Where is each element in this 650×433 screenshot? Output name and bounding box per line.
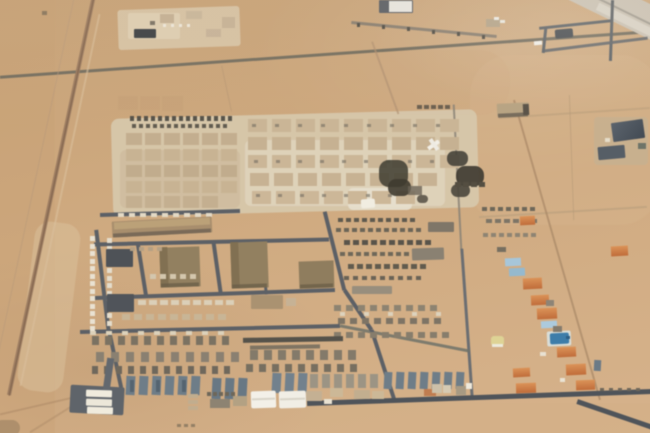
yard-structure [210,399,230,408]
tent-block-row [164,181,180,193]
vehicle-row [153,124,157,128]
dark-speckle-row [424,105,429,109]
tent-speckle-row [254,160,258,163]
equipment-row [392,228,397,232]
equipment-row [402,264,408,269]
storage-shed [428,222,454,232]
equipment-row [368,228,373,232]
equipment-row [400,228,405,232]
yard-row [171,352,179,362]
roadside-dots [609,388,613,391]
tent-block-row [164,165,180,177]
tent-block-row [164,133,180,145]
yard-row [246,364,253,372]
yard-row [116,366,122,374]
trailer-row [129,213,135,217]
yard-row [140,366,146,374]
tent-block-row [126,181,142,193]
trailer-column [90,319,95,324]
tent-block-row [145,149,161,161]
vehicle-row [200,116,204,121]
hangar-south-shadow [161,282,199,287]
tent-block-row [126,149,142,161]
tent-speckle-row [298,124,302,127]
cabin-row [204,300,212,305]
orange-roof-building [513,368,530,378]
trailer-row [162,213,168,217]
laydown-row [382,305,389,311]
yard-row [209,336,216,345]
cabin-row [170,274,176,279]
yard-row [183,336,190,345]
base-street [212,242,223,295]
container-accent-dark [130,380,134,392]
white-bits-row [412,312,417,316]
yard-row [337,364,344,372]
vehicle-row [216,124,220,128]
tent-speckle-row [321,124,325,127]
tent-speckle-row [436,124,440,127]
tent-block-row [418,173,437,186]
vehicle-row [165,116,169,121]
equipment-row [360,228,365,232]
trailer-column [90,251,95,256]
tent-block-row [145,196,161,208]
tent-block-row [126,133,142,145]
tent-block-row [202,149,218,161]
revetment-posts [457,32,460,36]
vehicle-row [223,124,227,128]
equipment-row [380,252,385,256]
vehicle-row [146,124,150,128]
cabin-row [170,314,178,320]
laydown-row [442,332,449,338]
white-bits-row [106,331,112,335]
strip-item-row [513,219,519,223]
cabin-row [226,300,234,305]
orange-roof-building [576,380,595,391]
tent-block-row [183,149,199,161]
equipment-row [384,264,390,269]
equipment-row [354,218,359,222]
yard-row [128,366,134,374]
mixed-storage-row [358,374,366,388]
equipment-row [380,240,386,245]
tent-speckle-row [298,160,302,163]
compound-structure [222,17,235,28]
bottom-speck [184,424,188,427]
vehicle-row [193,116,197,121]
cabin-row [134,314,142,320]
tent-speckle-row [390,124,394,127]
equipment-row [362,276,367,280]
trailer-column [90,296,95,301]
laydown-row [382,332,389,338]
yard-dots [219,392,223,396]
revetment-posts [382,25,385,29]
trailer-row [140,213,146,217]
feature-layer [0,0,650,433]
vehicle-row [195,124,199,128]
orange-roof-building [611,246,629,257]
storage-shed [352,286,392,294]
base-street [80,324,340,334]
desert-track [221,65,232,111]
roadside-building [456,386,466,395]
yard-row [348,350,356,360]
white-bits-row [202,331,208,335]
white-bits-row [138,331,144,335]
trailer-column [90,289,95,294]
equipment-row [340,252,345,256]
strip-item [553,326,562,332]
white-building [86,390,112,397]
laydown-row [394,332,401,338]
container-row-blue [165,376,175,395]
roadside-dots [600,388,604,391]
container-row-blue [420,372,429,389]
strip-item-row [486,219,492,223]
mixed-storage-row [334,374,342,388]
tent-block-row [164,149,180,161]
tent-block-row [272,155,291,168]
yard-row [350,364,357,372]
equipment-row [336,228,341,232]
laydown-row [422,318,429,324]
equipment-row [352,228,357,232]
equipment-row [376,228,381,232]
cabin-row [215,300,223,305]
equipment-cluster [471,182,477,187]
asphalt-pad-arm [103,358,114,391]
yard-row [157,336,164,345]
equipment-row [407,240,413,245]
yard-row [334,350,342,360]
tent-block-row [250,173,269,186]
white-vehicle [494,17,499,20]
trailer-row [151,213,157,217]
equipment-row [416,240,422,245]
white-building [86,399,112,406]
laydown-row [398,318,405,324]
roadside-building [432,384,442,393]
yard-dots [213,392,217,396]
cabin-row [182,300,190,305]
equipment-cluster [455,182,461,187]
equipment-row [394,218,399,222]
tent-speckle-row [344,194,348,197]
trailer-column [90,266,95,271]
corner-smudge [0,420,20,433]
tent-speckle-row [413,124,417,127]
equipment-row [393,264,399,269]
white-container-row [187,24,190,27]
dark-slate-building [597,145,625,160]
mixed-storage-row [346,374,354,388]
tent-block-row [344,137,363,150]
white-bits-row [154,331,160,335]
equipment-row [416,276,421,280]
vehicle-row [130,116,134,121]
trailer-column [107,268,112,273]
yard-structure-row [188,406,198,410]
vehicle-row [151,116,155,121]
white-container-row [171,24,174,27]
warehouse-white-roof [389,1,412,12]
cabin-row [149,300,157,305]
laydown-row [350,318,357,324]
tent-block-row [202,165,218,177]
equipment-row [362,218,367,222]
vehicle-row [148,247,153,251]
equipment-row [366,264,372,269]
vehicle-row [160,124,164,128]
storage-shed [412,247,444,260]
roadside-dots [618,388,622,391]
tent-speckle-row [322,194,326,197]
yard-row [259,364,266,372]
white-bits-row [436,312,441,316]
yard-row [264,350,272,360]
tent-block-row [183,181,199,193]
revetment-posts [407,27,410,31]
tent-block-row [252,191,271,204]
equipment-row [407,276,412,280]
tent-block-row [416,119,435,132]
equipment-row [356,252,361,256]
tent-block-row [145,181,161,193]
yard-row [188,366,194,374]
yard-row [298,364,305,372]
tent-block-row [221,181,237,193]
trailer-column [107,321,112,326]
revetment-posts [357,23,360,27]
tent-block-row [296,137,315,150]
tent-speckle-row [320,160,324,163]
laydown-row [406,305,413,311]
cabin-row [171,300,179,305]
yard-row [250,350,258,360]
dark-speckle-row [438,105,443,109]
strip-item-row [491,233,496,237]
tent-block-row [221,149,237,161]
vehicle-row [228,116,232,121]
plot-mark [162,96,183,111]
laydown-row [406,332,413,338]
tent-speckle-row [430,160,434,163]
workshop-building [251,295,283,309]
tent-block-row [298,173,317,186]
yard-row [201,352,209,362]
vehicle-row [181,124,185,128]
tent-speckle-row [276,160,280,163]
white-bits-row [388,312,393,316]
tent-speckle-row [344,124,348,127]
roadside-building [443,385,451,393]
white-truck [534,41,542,46]
yard-row [141,352,149,362]
tent-block-row [346,173,365,186]
cabin-row [190,274,196,279]
strip-item-row [495,219,501,223]
revetment-posts [432,30,435,34]
equipment-row [411,264,417,269]
tent-speckle-row [252,124,256,127]
white-structure [324,399,332,404]
cabin-row [218,314,226,320]
trailer-column [107,238,112,243]
laydown-row [334,305,341,311]
strip-item-row [504,219,510,223]
white-bits-row [170,331,176,335]
equipment-row [425,240,431,245]
revetment-wall [351,21,497,38]
yard-row [311,364,318,372]
cabin-row [193,300,201,305]
dark-speckle-row [417,105,422,109]
white-bits-row [364,312,369,316]
vehicle-row [179,116,183,121]
equipment-row [398,276,403,280]
equipment-cluster [408,186,422,195]
plot-mark [118,96,138,110]
tent-block-row [126,165,142,177]
blue-container [594,360,602,371]
compound-structure [186,11,202,19]
vehicle-row [139,124,143,128]
strip-item-row [506,207,511,211]
container-row-blue [211,378,221,399]
yard-row [272,364,279,372]
vehicle-row [144,116,148,121]
equipment-row [386,218,391,222]
tent-speckle-row [408,160,412,163]
yard-row [118,336,125,345]
tent-block-row [440,137,459,150]
vehicle-row [207,116,211,121]
yard-row [285,364,292,372]
laydown-row [374,318,381,324]
white-building [87,407,113,414]
equipment-row [410,218,415,222]
quonset-end-white [492,344,503,347]
equipment-row [371,276,376,280]
dark-roof-building [107,294,134,312]
yard-row [176,366,182,374]
yard-row [222,336,229,345]
laydown-row [370,305,377,311]
container-row-blue [139,376,149,395]
white-bits-row [122,331,128,335]
strip-item [546,300,554,306]
tent-speckle-row [300,194,304,197]
orange-roof-building [566,363,587,375]
roadside-building [372,391,384,399]
vehicle-row [202,124,206,128]
container-accent-dark [156,380,160,392]
tent-block-row [164,196,180,208]
tent-block-row [221,165,237,177]
orange-roof-building [523,278,543,290]
vehicle-row [158,116,162,121]
yard-dots [231,392,235,396]
tent-block-row [276,191,295,204]
tent-block-row [322,173,341,186]
tent-block-row [300,191,319,204]
yard-row [231,352,239,362]
vehicle-row [137,116,141,121]
strip-item-row [514,207,519,211]
yard-row [126,352,134,362]
trailer-column [90,304,95,309]
compound-structure [206,29,221,37]
tent-block-row [274,173,293,186]
equipment-row [378,218,383,222]
vehicle-row [209,124,213,128]
workshop-building [286,298,296,306]
tent-block-row [145,165,161,177]
revetment-posts [482,35,485,39]
equipment-row [370,218,375,222]
tent-block-row [368,137,387,150]
tent-block-row [145,133,161,145]
vehicle-row [167,124,171,128]
tent-block-row [344,155,363,168]
laydown-row [410,318,417,324]
white-structure [560,378,565,382]
trailer-column [90,311,95,316]
laydown-row [346,332,353,338]
equipment-row [357,264,363,269]
container-row-blue [396,372,405,389]
vehicle-row [221,116,225,121]
pool-shadow [566,336,570,339]
tent-block-row [183,165,199,177]
vehicle-row [130,247,135,251]
equipment-row [420,264,426,269]
yard-row [306,350,314,360]
cabin-row [160,274,166,279]
white-bits-row [186,331,192,335]
tent-block-row [248,137,267,150]
laydown-row [394,305,401,311]
cabin-row [160,300,168,305]
strip-item-row [522,207,527,211]
white-vehicle [500,20,505,23]
yard-row [92,366,98,374]
yard-row [292,350,300,360]
tent-block-row [183,196,199,208]
tent-block-row [221,133,237,145]
bottom-speck [177,424,181,427]
yard-row [224,366,230,374]
tent-block-row [392,119,411,132]
laydown-row [418,332,425,338]
roadside-dots [636,388,640,391]
container-row-blue [384,372,393,389]
laydown-row [430,305,437,311]
equipment-row [396,252,401,256]
tent-block-row [440,119,459,132]
strip-item-row [530,207,535,211]
equipment-row [384,228,389,232]
yard-row [164,366,170,374]
yard-dots [225,392,229,396]
equipment-row [416,228,421,232]
yard-row [212,366,218,374]
vehicle-row [157,247,162,251]
yard-structure-row [188,400,198,404]
